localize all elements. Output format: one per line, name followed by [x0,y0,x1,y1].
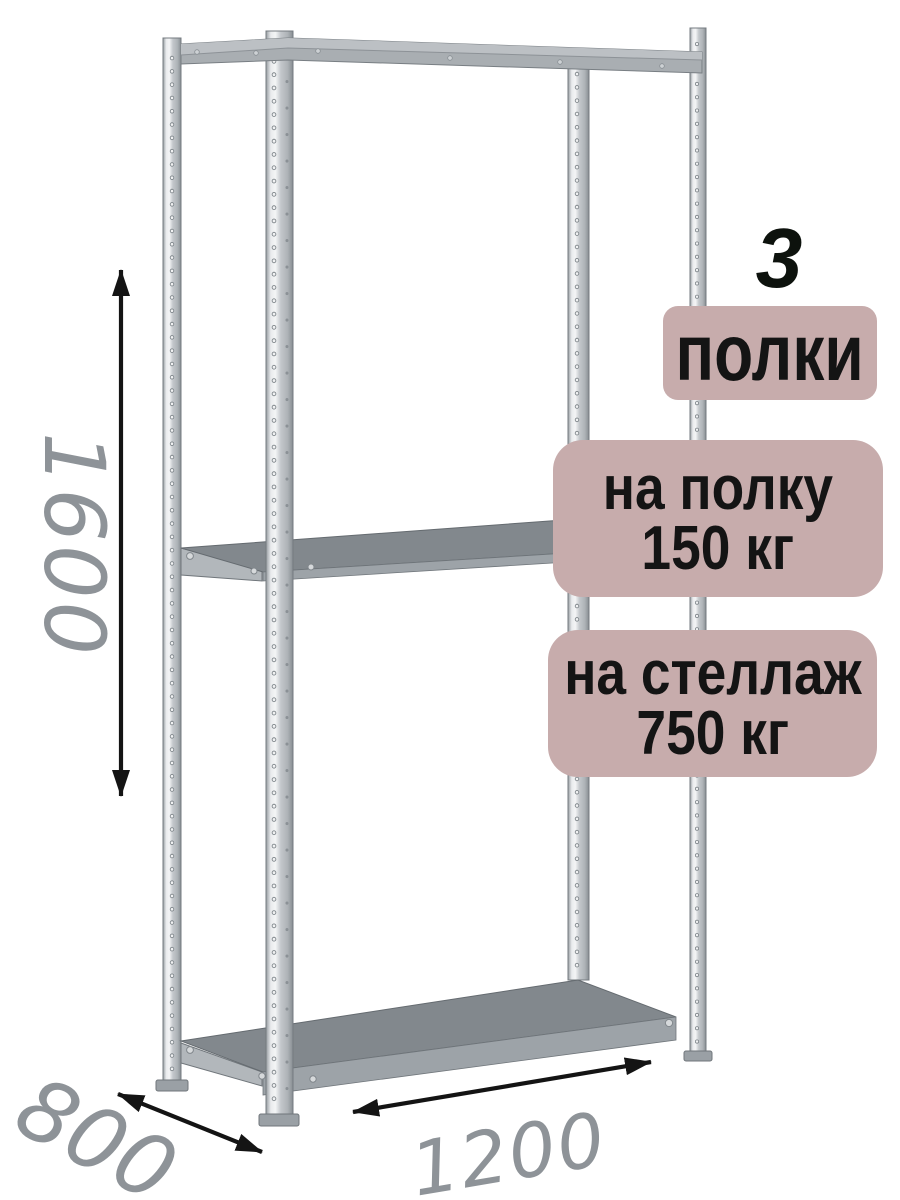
post-foot [684,1051,712,1061]
height-dimension-label: 1600 [25,432,123,658]
shelving-rack-illustration [0,0,900,1200]
per-shelf-load-line2: 150 кг [642,519,795,579]
total-load-line1: на стеллаж [564,644,861,704]
per-shelf-load-line1: на полку [603,459,833,519]
top-shelf [181,38,702,73]
product-infographic: 1600 800 1200 3 полки на полку 150 кг на… [0,0,900,1200]
bottom-shelf [181,980,676,1095]
post-foot [259,1114,299,1126]
shelf-count-label: полки [676,313,864,393]
total-load-badge: на стеллаж 750 кг [548,630,877,777]
shelf-count-badge: полки [663,306,877,400]
post-foot [156,1080,188,1091]
shelf-count-number: 3 [742,212,816,304]
total-load-line2: 750 кг [636,704,789,764]
per-shelf-load-badge: на полку 150 кг [553,440,883,597]
